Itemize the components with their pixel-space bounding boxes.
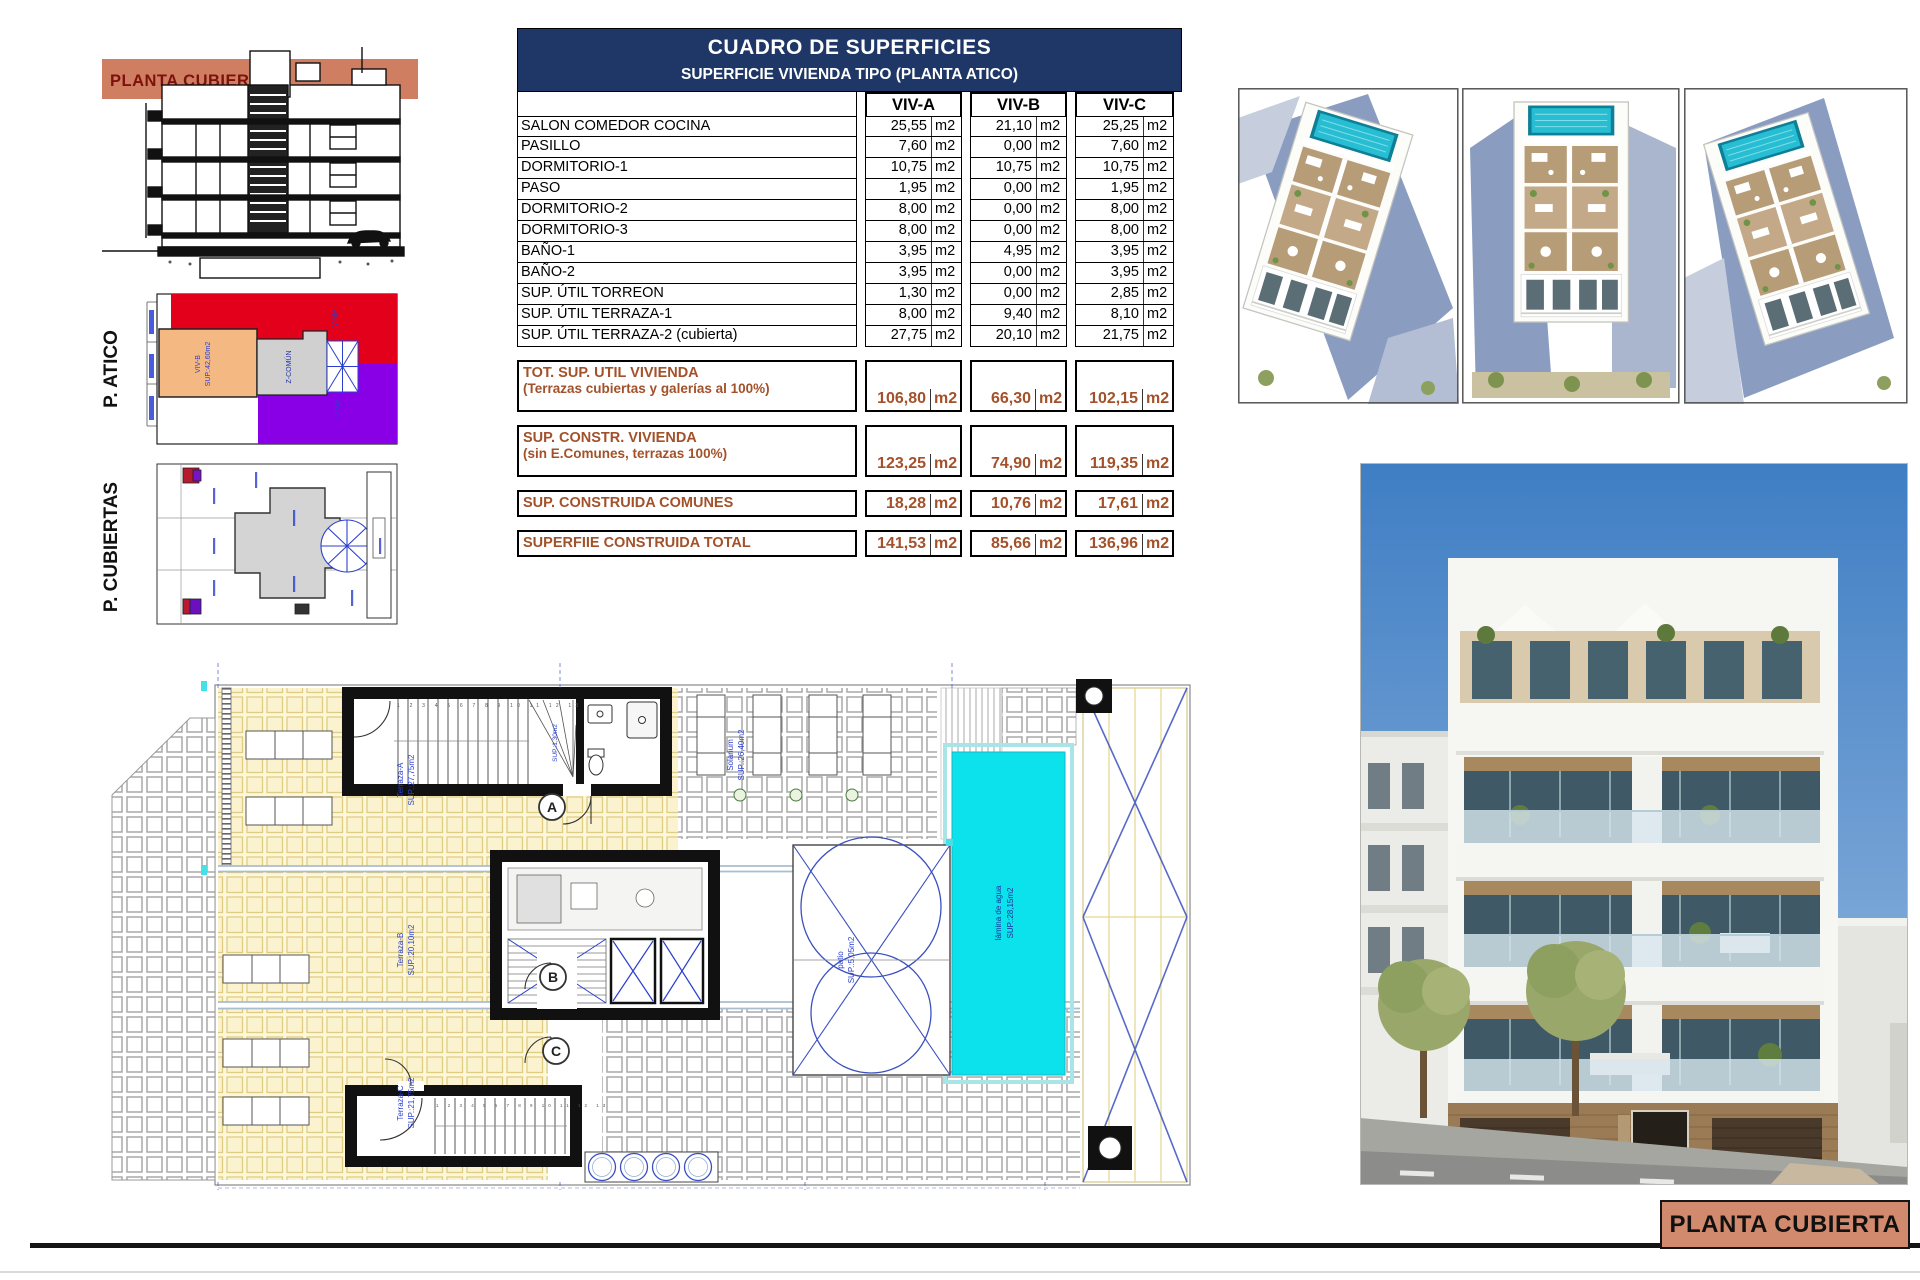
value-number: 1,95: [866, 179, 931, 199]
table-column-header-row: VIV-AVIV-BVIV-C: [517, 92, 1182, 116]
water-tanks: [585, 1152, 718, 1182]
value-unit: m2: [931, 284, 961, 304]
roof-floor-plan: 1 2 3 4 5 6 7 8 9 10 11 12 13: [105, 655, 1197, 1190]
svg-text:Solarium: Solarium: [726, 739, 735, 771]
summary-value-number: 141,53: [867, 534, 930, 555]
gutter: [962, 490, 970, 517]
gutter: [857, 116, 865, 137]
gutter: [962, 92, 970, 118]
summary-value-unit: m2: [930, 454, 960, 475]
table-row: BAÑO-13,95m24,95m23,95m2: [517, 242, 1182, 263]
svg-text:Terraza-B: Terraza-B: [396, 933, 405, 968]
core-x-box: [327, 341, 358, 392]
value-unit: m2: [1036, 284, 1066, 304]
summary-value-number: 18,28: [867, 494, 930, 515]
value-number: 2,85: [1076, 284, 1143, 304]
gutter: [857, 158, 865, 179]
table-title-bar: CUADRO DE SUPERFICIES SUPERFICIE VIVIEND…: [517, 28, 1182, 92]
summary-value-cell: 123,25m2: [865, 425, 962, 477]
atico-dim-strip: [147, 302, 157, 426]
summary-label-line: SUPERFIIE CONSTRUIDA TOTAL: [523, 535, 851, 551]
value-unit: m2: [931, 200, 961, 220]
top-stair-block: 1 2 3 4 5 6 7 8 9 10 11 12 13: [342, 687, 672, 796]
value-unit: m2: [1143, 242, 1173, 262]
gutter: [857, 221, 865, 242]
aerial-render-3: [1684, 88, 1908, 404]
value-number: 9,40: [971, 305, 1036, 325]
table-row: PASO1,95m20,00m21,95m2: [517, 179, 1182, 200]
value-number: 20,10: [971, 326, 1036, 346]
svg-text:SUP.:21,75m2: SUP.:21,75m2: [407, 1077, 416, 1129]
gutter: [857, 305, 865, 326]
svg-text:SUP.:42,60m2: SUP.:42,60m2: [205, 342, 212, 387]
value-unit: m2: [1036, 158, 1066, 178]
value-number: 8,00: [1076, 200, 1143, 220]
value-unit: m2: [931, 263, 961, 283]
gutter: [962, 242, 970, 263]
value-unit: m2: [1036, 326, 1066, 346]
summary-value-unit: m2: [1035, 534, 1065, 555]
value-unit: m2: [1143, 305, 1173, 325]
svg-text:SUP.:5,05m2: SUP.:5,05m2: [847, 936, 856, 983]
column-header: VIV-C: [1075, 92, 1174, 118]
summary-value-unit: m2: [1142, 494, 1172, 515]
summary-value-unit: m2: [1035, 454, 1065, 475]
section-drawing: PLANTA CUBIERTA: [100, 33, 420, 291]
value-cell: 0,00m2: [970, 199, 1067, 221]
value-cell: 3,95m2: [865, 262, 962, 284]
svg-text:SUP.:26,40m2: SUP.:26,40m2: [737, 729, 746, 781]
value-number: 3,95: [1076, 263, 1143, 283]
summary-value-cell: 10,76m2: [970, 490, 1067, 517]
svg-text:SUP.:28,15m2: SUP.:28,15m2: [1006, 887, 1015, 939]
summary-value-number: 10,76: [972, 494, 1035, 515]
summary-value-number: 102,15: [1077, 389, 1142, 410]
value-unit: m2: [1036, 305, 1066, 325]
summary-gap: [517, 412, 1182, 425]
gutter: [857, 200, 865, 221]
row-label: PASO: [517, 178, 857, 200]
cubiertas-crossed-circle: [321, 520, 373, 572]
summary-sublabel: (Terrazas cubiertas y galerías al 100%): [523, 381, 851, 396]
table-row: SUP. ÚTIL TORREON1,30m20,00m22,85m2: [517, 284, 1182, 305]
value-number: 1,95: [1076, 179, 1143, 199]
row-label: PASILLO: [517, 136, 857, 158]
value-cell: 25,25m2: [1075, 116, 1174, 137]
value-unit: m2: [1143, 221, 1173, 241]
footer-rule: [30, 1243, 1920, 1248]
svg-text:Terraza-C: Terraza-C: [396, 1085, 405, 1120]
door-letter-b: B: [540, 964, 566, 990]
summary-value-number: 136,96: [1077, 534, 1142, 555]
summary-sublabel: (sin E.Comunes, terrazas 100%): [523, 446, 851, 461]
central-core: [490, 850, 720, 1020]
aerial-render-2: [1462, 88, 1680, 404]
column-header: VIV-A: [865, 92, 962, 118]
gutter: [857, 284, 865, 305]
value-number: 0,00: [971, 200, 1036, 220]
gutter: [1067, 158, 1075, 179]
balcony-floor-1: [1456, 757, 1824, 881]
gutter: [1067, 490, 1075, 517]
aerial-render-1: [1238, 88, 1459, 404]
value-number: 8,00: [866, 305, 931, 325]
value-unit: m2: [931, 179, 961, 199]
summary-value-cell: 85,66m2: [970, 530, 1067, 557]
table-row: DORMITORIO-28,00m20,00m28,00m2: [517, 200, 1182, 221]
summary-value-unit: m2: [1142, 454, 1172, 475]
value-number: 0,00: [971, 221, 1036, 241]
value-number: 0,00: [971, 263, 1036, 283]
gutter: [857, 425, 865, 477]
value-number: 1,30: [866, 284, 931, 304]
summary-value-cell: 141,53m2: [865, 530, 962, 557]
sheet-title: PLANTA CUBIERTA: [1669, 1211, 1900, 1239]
value-cell: 0,00m2: [970, 220, 1067, 242]
atico-title: P. ATICO: [101, 330, 122, 408]
summary-label: TOT. SUP. UTIL VIVIENDA(Terrazas cubiert…: [517, 360, 857, 412]
row-label: SALON COMEDOR COCINA: [517, 116, 857, 137]
table-row: SUP. ÚTIL TERRAZA-18,00m29,40m28,10m2: [517, 305, 1182, 326]
value-number: 3,95: [1076, 242, 1143, 262]
gutter: [1067, 116, 1075, 137]
gutter: [962, 284, 970, 305]
value-cell: 25,55m2: [865, 116, 962, 137]
summary-value-number: 119,35: [1077, 454, 1142, 475]
table-row: SALON COMEDOR COCINA25,55m221,10m225,25m…: [517, 116, 1182, 137]
gutter: [962, 179, 970, 200]
value-unit: m2: [931, 305, 961, 325]
summary-value-unit: m2: [1142, 389, 1172, 410]
value-cell: 1,95m2: [1075, 178, 1174, 200]
svg-text:SUP.:27,75m2: SUP.:27,75m2: [407, 754, 416, 806]
table-row: SUP. ÚTIL TERRAZA-2 (cubierta)27,75m220,…: [517, 326, 1182, 347]
gutter: [857, 530, 865, 557]
value-cell: 9,40m2: [970, 304, 1067, 326]
value-cell: 8,00m2: [1075, 199, 1174, 221]
value-number: 4,95: [971, 242, 1036, 262]
value-number: 7,60: [866, 137, 931, 157]
summary-gap: [517, 347, 1182, 360]
value-number: 3,95: [866, 263, 931, 283]
gutter: [857, 263, 865, 284]
small-tile-block: [1002, 688, 1076, 745]
column-header: VIV-B: [970, 92, 1067, 118]
stair-numbers: 1 2 3 4 5 6 7 8 9 10 11 12 13: [397, 703, 582, 709]
value-unit: m2: [1143, 179, 1173, 199]
summary-row: TOT. SUP. UTIL VIVIENDA(Terrazas cubiert…: [517, 360, 1182, 412]
right-x-strip: [1083, 688, 1187, 1182]
row-label: SUP. ÚTIL TORREON: [517, 283, 857, 305]
stair-numbers-bottom: 1 2 3 4 5 6 7 8 9 10 11 12 13: [436, 1103, 609, 1108]
value-cell: 4,95m2: [970, 241, 1067, 263]
svg-text:VIV-C: VIV-C: [333, 399, 340, 417]
svg-text:lámina de agua: lámina de agua: [994, 885, 1003, 940]
value-cell: 21,10m2: [970, 116, 1067, 137]
value-cell: 0,00m2: [970, 283, 1067, 305]
value-number: 7,60: [1076, 137, 1143, 157]
summary-value-unit: m2: [930, 389, 960, 410]
gutter: [1067, 284, 1075, 305]
summary-value-cell: 18,28m2: [865, 490, 962, 517]
value-number: 8,00: [1076, 221, 1143, 241]
gutter: [857, 137, 865, 158]
svg-text:A: A: [547, 799, 557, 815]
summary-gap: [517, 477, 1182, 490]
aerial-renders: [1238, 88, 1908, 404]
value-unit: m2: [1036, 117, 1066, 136]
summary-value-unit: m2: [930, 534, 960, 555]
door-letter-a: A: [539, 794, 565, 820]
value-unit: m2: [931, 242, 961, 262]
value-number: 25,25: [1076, 117, 1143, 136]
value-unit: m2: [1143, 200, 1173, 220]
value-number: 8,00: [866, 200, 931, 220]
value-cell: 10,75m2: [865, 157, 962, 179]
right-neighbor-building: [1838, 918, 1908, 1185]
left-terrace-strip: [112, 718, 215, 1180]
value-cell: 8,10m2: [1075, 304, 1174, 326]
summary-gap: [517, 517, 1182, 530]
value-cell: 3,95m2: [1075, 241, 1174, 263]
gutter: [962, 200, 970, 221]
value-cell: 27,75m2: [865, 325, 962, 347]
value-unit: m2: [931, 117, 961, 136]
gutter: [962, 305, 970, 326]
value-cell: 7,60m2: [865, 136, 962, 158]
value-cell: 7,60m2: [1075, 136, 1174, 158]
page-edge-line: [0, 1271, 1920, 1273]
gutter: [857, 179, 865, 200]
summary-label-line: SUP. CONSTR. VIVIENDA: [523, 430, 851, 446]
gutter: [857, 92, 865, 118]
summary-value-number: 17,61: [1077, 494, 1142, 515]
value-unit: m2: [1036, 242, 1066, 262]
gutter: [962, 530, 970, 557]
summary-value-unit: m2: [1035, 494, 1065, 515]
value-cell: 0,00m2: [970, 136, 1067, 158]
svg-text:VIV-A: VIV-A: [330, 309, 337, 327]
value-number: 27,75: [866, 326, 931, 346]
summary-value-cell: 74,90m2: [970, 425, 1067, 477]
gutter: [962, 221, 970, 242]
value-cell: 1,30m2: [865, 283, 962, 305]
table-row: DORMITORIO-38,00m20,00m28,00m2: [517, 221, 1182, 242]
value-unit: m2: [1036, 137, 1066, 157]
left-neighbor-building: [1360, 731, 1448, 1185]
door-letter-c: C: [543, 1038, 569, 1064]
chimney-box-bottom: [1088, 1126, 1132, 1170]
gutter: [1067, 263, 1075, 284]
value-number: 10,75: [1076, 158, 1143, 178]
value-cell: 3,95m2: [865, 241, 962, 263]
facade-render: [1360, 463, 1908, 1185]
value-number: 21,10: [971, 117, 1036, 136]
svg-text:SUP.:1,30m2: SUP.:1,30m2: [552, 724, 559, 762]
sheet-title-box: PLANTA CUBIERTA: [1660, 1200, 1910, 1249]
value-cell: 21,75m2: [1075, 325, 1174, 347]
value-number: 8,00: [866, 221, 931, 241]
svg-text:B: B: [548, 969, 558, 985]
value-cell: 8,00m2: [865, 220, 962, 242]
main-building: [1448, 558, 1838, 1173]
summary-value-cell: 136,96m2: [1075, 530, 1174, 557]
value-cell: 10,75m2: [1075, 157, 1174, 179]
summary-label-line: SUP. CONSTRUIDA COMUNES: [523, 495, 851, 511]
gutter: [962, 425, 970, 477]
column-header-empty: [517, 92, 857, 118]
value-number: 10,75: [971, 158, 1036, 178]
gutter: [1067, 137, 1075, 158]
svg-text:Z-COMÚN: Z-COMÚN: [284, 350, 293, 383]
value-cell: 0,00m2: [970, 262, 1067, 284]
cubiertas-key-plan: P. CUBIERTAS: [95, 458, 415, 636]
value-number: 0,00: [971, 284, 1036, 304]
value-unit: m2: [1143, 117, 1173, 136]
gutter: [1067, 530, 1075, 557]
surfaces-table: CUADRO DE SUPERFICIES SUPERFICIE VIVIEND…: [517, 28, 1182, 557]
value-unit: m2: [931, 221, 961, 241]
value-unit: m2: [931, 326, 961, 346]
value-unit: m2: [1143, 137, 1173, 157]
value-cell: 10,75m2: [970, 157, 1067, 179]
value-unit: m2: [1036, 179, 1066, 199]
summary-value-number: 74,90: [972, 454, 1035, 475]
balcony-floor-3: [1456, 1005, 1824, 1111]
value-unit: m2: [931, 137, 961, 157]
table-subtitle: SUPERFICIE VIVIENDA TIPO (PLANTA ATICO): [518, 60, 1181, 91]
gutter: [1067, 92, 1075, 118]
gutter: [962, 137, 970, 158]
summary-value-cell: 66,30m2: [970, 360, 1067, 412]
summary-value-cell: 102,15m2: [1075, 360, 1174, 412]
value-cell: 8,00m2: [865, 199, 962, 221]
summary-row: SUP. CONSTRUIDA COMUNES18,28m210,76m217,…: [517, 490, 1182, 517]
plan-sheet: PLANTA CUBIERTA: [0, 0, 1920, 1280]
gutter: [1067, 179, 1075, 200]
value-number: 10,75: [866, 158, 931, 178]
svg-text:VIV-B: VIV-B: [195, 355, 202, 373]
table-summary: TOT. SUP. UTIL VIVIENDA(Terrazas cubiert…: [517, 347, 1182, 557]
summary-value-unit: m2: [1142, 534, 1172, 555]
row-label: DORMITORIO-1: [517, 157, 857, 179]
value-cell: 8,00m2: [1075, 220, 1174, 242]
table-row: PASILLO7,60m20,00m27,60m2: [517, 137, 1182, 158]
table-body: SALON COMEDOR COCINA25,55m221,10m225,25m…: [517, 116, 1182, 347]
row-label: BAÑO-2: [517, 262, 857, 284]
summary-value-number: 85,66: [972, 534, 1035, 555]
summary-label-line: TOT. SUP. UTIL VIVIENDA: [523, 365, 851, 381]
svg-text:patio: patio: [836, 951, 845, 969]
svg-text:Terraza-A: Terraza-A: [396, 762, 405, 797]
svg-text:C: C: [551, 1043, 561, 1059]
gutter: [962, 116, 970, 137]
summary-value-cell: 119,35m2: [1075, 425, 1174, 477]
chimney-box-top: [1076, 679, 1112, 713]
summary-value-cell: 17,61m2: [1075, 490, 1174, 517]
gutter: [857, 326, 865, 347]
gutter: [1067, 305, 1075, 326]
value-number: 0,00: [971, 137, 1036, 157]
value-number: 3,95: [866, 242, 931, 262]
gutter: [1067, 242, 1075, 263]
atico-key-plan: P. ATICO VIV-A VIV-B SUP.:42,60m2 VIV-C …: [95, 288, 415, 450]
summary-label: SUPERFIIE CONSTRUIDA TOTAL: [517, 530, 857, 557]
value-cell: 8,00m2: [865, 304, 962, 326]
value-number: 21,75: [1076, 326, 1143, 346]
gutter: [857, 242, 865, 263]
summary-value-cell: 106,80m2: [865, 360, 962, 412]
balcony-floor-2: [1456, 881, 1824, 1005]
value-unit: m2: [931, 158, 961, 178]
row-label: DORMITORIO-2: [517, 199, 857, 221]
table-title: CUADRO DE SUPERFICIES: [518, 29, 1181, 60]
value-cell: 1,95m2: [865, 178, 962, 200]
value-unit: m2: [1036, 200, 1066, 220]
summary-label: SUP. CONSTR. VIVIENDA(sin E.Comunes, ter…: [517, 425, 857, 477]
value-cell: 3,95m2: [1075, 262, 1174, 284]
value-cell: 0,00m2: [970, 178, 1067, 200]
summary-row: SUPERFIIE CONSTRUIDA TOTAL141,53m285,66m…: [517, 530, 1182, 557]
gutter: [1067, 425, 1075, 477]
value-number: 0,00: [971, 179, 1036, 199]
value-number: 8,10: [1076, 305, 1143, 325]
summary-value-number: 123,25: [867, 454, 930, 475]
value-unit: m2: [1036, 263, 1066, 283]
door-a-gap: [563, 784, 591, 796]
summary-value-unit: m2: [1035, 389, 1065, 410]
gutter: [1067, 221, 1075, 242]
value-unit: m2: [1143, 158, 1173, 178]
gutter: [857, 360, 865, 412]
value-unit: m2: [1036, 221, 1066, 241]
value-number: 25,55: [866, 117, 931, 136]
row-label: BAÑO-1: [517, 241, 857, 263]
summary-value-unit: m2: [930, 494, 960, 515]
table-row: BAÑO-23,95m20,00m23,95m2: [517, 263, 1182, 284]
summary-value-number: 66,30: [972, 389, 1035, 410]
cubiertas-title: P. CUBIERTAS: [101, 482, 122, 612]
gutter: [962, 263, 970, 284]
gutter: [962, 326, 970, 347]
gutter: [1067, 200, 1075, 221]
value-cell: 2,85m2: [1075, 283, 1174, 305]
gutter: [1067, 326, 1075, 347]
value-unit: m2: [1143, 263, 1173, 283]
gutter: [1067, 360, 1075, 412]
gutter: [962, 360, 970, 412]
row-label: DORMITORIO-3: [517, 220, 857, 242]
summary-row: SUP. CONSTR. VIVIENDA(sin E.Comunes, ter…: [517, 425, 1182, 477]
value-unit: m2: [1143, 326, 1173, 346]
table-row: DORMITORIO-110,75m210,75m210,75m2: [517, 158, 1182, 179]
patio-skylight: [793, 837, 950, 1075]
row-label: SUP. ÚTIL TERRAZA-2 (cubierta): [517, 325, 857, 347]
svg-text:SUP.:20,10m2: SUP.:20,10m2: [407, 924, 416, 976]
gutter: [857, 490, 865, 517]
row-label: SUP. ÚTIL TERRAZA-1: [517, 304, 857, 326]
value-cell: 20,10m2: [970, 325, 1067, 347]
summary-value-number: 106,80: [867, 389, 930, 410]
summary-label: SUP. CONSTRUIDA COMUNES: [517, 490, 857, 517]
gutter: [962, 158, 970, 179]
value-unit: m2: [1143, 284, 1173, 304]
